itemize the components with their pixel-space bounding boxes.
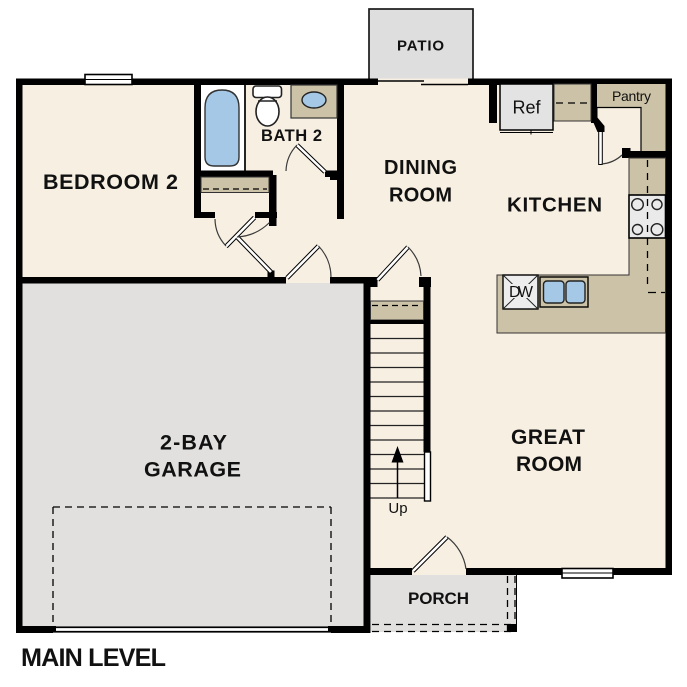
svg-text:DW: DW	[509, 284, 534, 301]
svg-text:GREAT: GREAT	[511, 426, 585, 449]
svg-text:DINING: DINING	[384, 157, 457, 179]
svg-text:BATH 2: BATH 2	[261, 127, 322, 145]
svg-text:BEDROOM 2: BEDROOM 2	[43, 170, 178, 194]
svg-text:ROOM: ROOM	[389, 185, 452, 207]
svg-text:GARAGE: GARAGE	[144, 458, 241, 482]
svg-text:Ref: Ref	[512, 98, 541, 118]
svg-text:Up: Up	[388, 500, 407, 517]
svg-text:Pantry: Pantry	[612, 88, 651, 104]
svg-text:PATIO: PATIO	[397, 38, 444, 55]
svg-text:MAIN LEVEL: MAIN LEVEL	[21, 644, 166, 672]
svg-text:2-BAY: 2-BAY	[160, 431, 227, 455]
svg-text:KITCHEN: KITCHEN	[507, 194, 602, 217]
svg-text:PORCH: PORCH	[408, 589, 469, 608]
svg-text:ROOM: ROOM	[516, 453, 582, 476]
